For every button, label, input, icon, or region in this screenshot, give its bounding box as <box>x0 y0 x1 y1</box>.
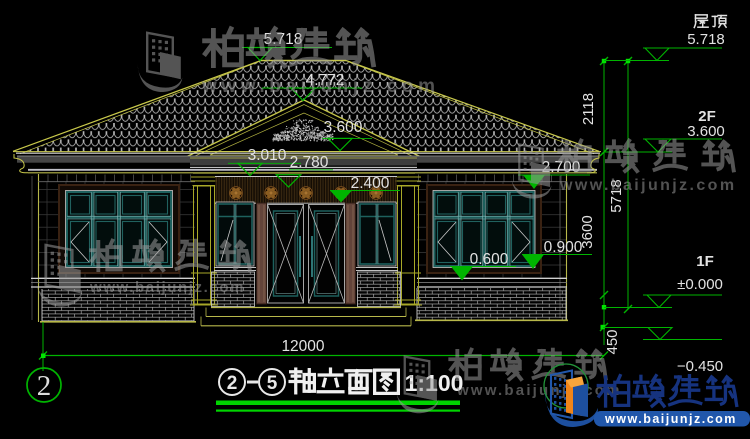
svg-text:www.baijunjz.com: www.baijunjz.com <box>201 76 440 97</box>
svg-text:5.718: 5.718 <box>687 31 725 48</box>
svg-text:2118: 2118 <box>580 93 597 125</box>
svg-text:1F: 1F <box>696 253 714 270</box>
svg-text:2: 2 <box>227 373 238 394</box>
svg-text:www.baijunjz.com: www.baijunjz.com <box>559 177 737 194</box>
svg-text:0.900: 0.900 <box>544 239 583 256</box>
svg-text:2.780: 2.780 <box>290 154 329 171</box>
svg-text:www.baijunjz.com: www.baijunjz.com <box>604 412 737 426</box>
svg-text:3.600: 3.600 <box>687 123 725 140</box>
svg-text:2.400: 2.400 <box>351 175 390 192</box>
svg-text:3.600: 3.600 <box>324 119 363 136</box>
svg-text:0.600: 0.600 <box>470 251 509 268</box>
svg-text:2: 2 <box>37 370 52 402</box>
svg-text:450: 450 <box>604 329 621 354</box>
svg-text:−0.450: −0.450 <box>677 358 723 375</box>
svg-text:3600: 3600 <box>579 215 596 248</box>
svg-text:www.baijunjz.com: www.baijunjz.com <box>89 279 245 296</box>
svg-text:5: 5 <box>267 373 278 394</box>
svg-text:±0.000: ±0.000 <box>677 276 723 293</box>
svg-text:3.010: 3.010 <box>248 147 287 164</box>
svg-text:12000: 12000 <box>281 338 324 355</box>
